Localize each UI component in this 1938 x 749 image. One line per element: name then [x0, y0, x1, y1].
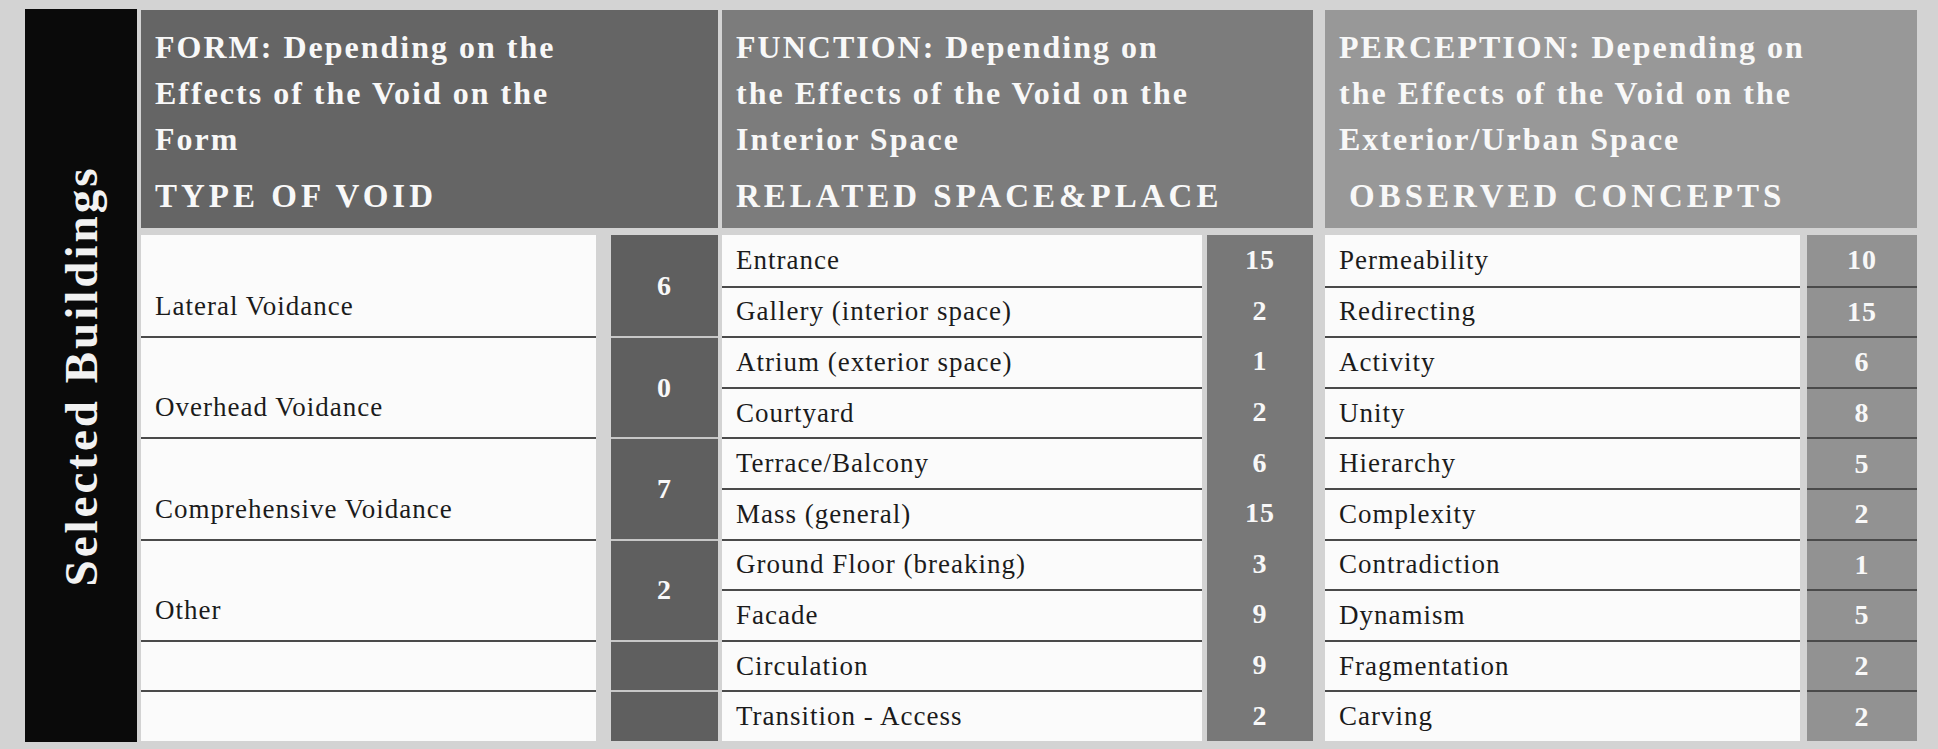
perception-title-line: Exterior/Urban Space [1339, 116, 1907, 162]
perception-subtitle: OBSERVED CONCEPTS [1339, 174, 1907, 218]
row-value-cell: 5 [1807, 437, 1917, 488]
row-label-cell: Activity [1325, 336, 1800, 387]
function-label-column: Entrance Gallery (interior space) Atrium… [722, 235, 1202, 741]
row-label-cell: Complexity [1325, 488, 1800, 539]
row-label-cell: Other [141, 539, 596, 640]
row-label-cell: Entrance [722, 235, 1202, 286]
row-value-cell: 15 [1207, 488, 1313, 539]
form-subtitle: TYPE OF VOID [155, 174, 708, 218]
perception-rows: Permeability Redirecting Activity Unity … [1325, 235, 1917, 741]
row-value-cell: 2 [1207, 286, 1313, 337]
function-header: FUNCTION: Depending on the Effects of th… [722, 10, 1313, 228]
selected-buildings-strip: Selected Buildings [25, 9, 137, 742]
row-value-cell: 10 [1807, 235, 1917, 286]
row-label-cell: Courtyard [722, 387, 1202, 438]
form-rows: Lateral Voidance Overhead Voidance Compr… [141, 235, 718, 741]
row-label-cell: Overhead Voidance [141, 336, 596, 437]
row-value-cell: 1 [1807, 539, 1917, 590]
perception-header: PERCEPTION: Depending on the Effects of … [1325, 10, 1917, 228]
row-label-cell: Redirecting [1325, 286, 1800, 337]
row-label-cell: Facade [722, 589, 1202, 640]
row-label-cell: Terrace/Balcony [722, 437, 1202, 488]
row-label-cell: Hierarchy [1325, 437, 1800, 488]
form-label-column: Lateral Voidance Overhead Voidance Compr… [141, 235, 596, 741]
function-title-line: Interior Space [736, 116, 1303, 162]
row-label-cell: Permeability [1325, 235, 1800, 286]
row-value-cell [611, 640, 718, 691]
perception-title-line: the Effects of the Void on the [1339, 70, 1907, 116]
row-value-cell: 1 [1207, 336, 1313, 387]
row-value-cell: 2 [1207, 387, 1313, 438]
row-label-cell: Mass (general) [722, 488, 1202, 539]
function-title-line: the Effects of the Void on the [736, 70, 1303, 116]
table-figure: Selected Buildings FORM: Depending on th… [0, 0, 1938, 749]
row-label-cell [141, 690, 596, 741]
row-value-cell: 0 [611, 336, 718, 437]
row-value-cell: 15 [1807, 286, 1917, 337]
function-rows: Entrance Gallery (interior space) Atrium… [722, 235, 1313, 741]
row-label-cell: Ground Floor (breaking) [722, 539, 1202, 590]
row-value-cell: 2 [611, 539, 718, 640]
row-label-cell: Gallery (interior space) [722, 286, 1202, 337]
row-label-cell: Fragmentation [1325, 640, 1800, 691]
function-title-line: FUNCTION: Depending on [736, 24, 1303, 70]
row-value-cell: 3 [1207, 539, 1313, 590]
row-label-cell: Atrium (exterior space) [722, 336, 1202, 387]
row-label-cell: Unity [1325, 387, 1800, 438]
row-label-cell [141, 640, 596, 691]
form-title-line: Form [155, 116, 708, 162]
perception-label-column: Permeability Redirecting Activity Unity … [1325, 235, 1800, 741]
form-title-line: FORM: Depending on the [155, 24, 708, 70]
row-label-cell: Lateral Voidance [141, 235, 596, 336]
function-panel: FUNCTION: Depending on the Effects of th… [722, 10, 1313, 741]
form-header: FORM: Depending on the Effects of the Vo… [141, 10, 718, 228]
selected-buildings-label: Selected Buildings [54, 165, 108, 586]
row-value-cell: 15 [1207, 235, 1313, 286]
row-value-cell: 6 [1807, 336, 1917, 387]
row-label-cell: Contradiction [1325, 539, 1800, 590]
perception-title-line: PERCEPTION: Depending on [1339, 24, 1907, 70]
row-value-cell: 2 [1207, 690, 1313, 741]
row-value-cell [611, 690, 718, 741]
row-value-cell: 5 [1807, 589, 1917, 640]
row-value-cell: 2 [1807, 690, 1917, 741]
perception-panel: PERCEPTION: Depending on the Effects of … [1325, 10, 1917, 741]
row-label-cell: Dynamism [1325, 589, 1800, 640]
row-value-cell: 2 [1807, 488, 1917, 539]
row-value-cell: 6 [1207, 437, 1313, 488]
row-value-cell: 9 [1207, 640, 1313, 691]
form-value-column: 6 0 7 2 [611, 235, 718, 741]
form-panel: FORM: Depending on the Effects of the Vo… [141, 10, 718, 741]
row-value-cell: 2 [1807, 640, 1917, 691]
row-value-cell: 9 [1207, 589, 1313, 640]
function-subtitle: RELATED SPACE&PLACE [736, 174, 1303, 218]
row-value-cell: 8 [1807, 387, 1917, 438]
row-label-cell: Comprehensive Voidance [141, 437, 596, 538]
row-value-cell: 7 [611, 437, 718, 538]
row-value-cell: 6 [611, 235, 718, 336]
function-value-column: 15 2 1 2 6 15 3 9 9 2 [1207, 235, 1313, 741]
form-title-line: Effects of the Void on the [155, 70, 708, 116]
row-label-cell: Carving [1325, 690, 1800, 741]
perception-value-column: 10 15 6 8 5 2 1 5 2 2 [1807, 235, 1917, 741]
row-label-cell: Circulation [722, 640, 1202, 691]
row-label-cell: Transition - Access [722, 690, 1202, 741]
